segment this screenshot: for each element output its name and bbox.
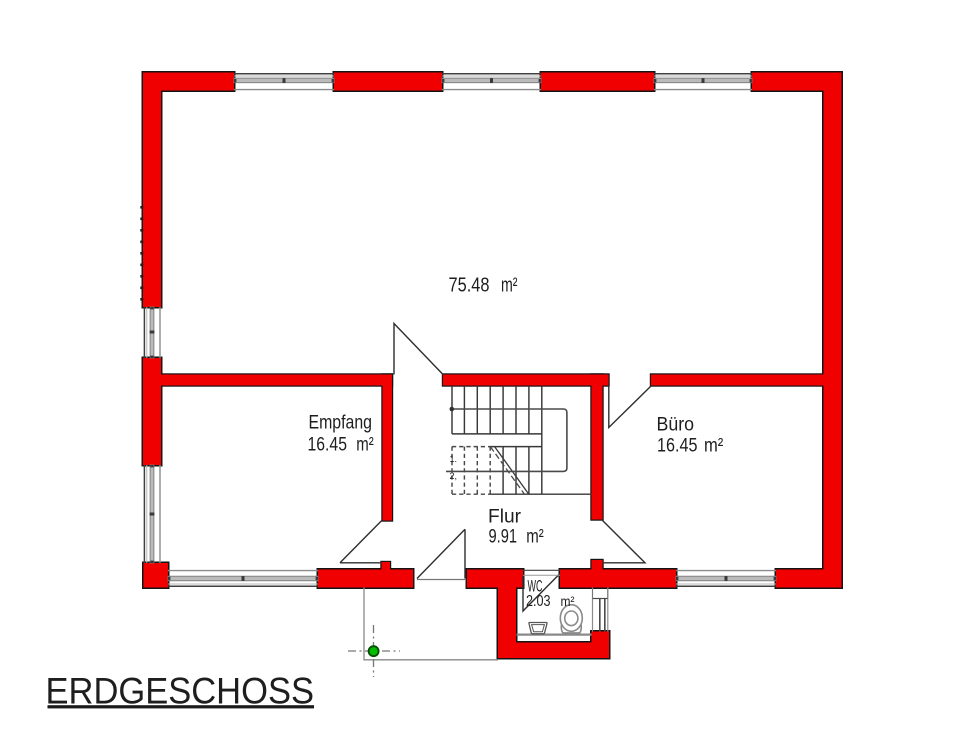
svg-text:1.: 1. — [450, 454, 458, 464]
svg-text:Büro: Büro — [657, 414, 695, 436]
svg-text:16.45: 16.45 — [308, 434, 348, 456]
svg-text:Flur: Flur — [488, 506, 521, 528]
svg-text:m²: m² — [704, 435, 724, 457]
svg-text:16.45: 16.45 — [657, 435, 698, 457]
svg-text:m²: m² — [561, 593, 575, 609]
svg-text:m²: m² — [356, 434, 374, 456]
svg-text:2.03: 2.03 — [526, 593, 551, 610]
svg-text:2,: 2, — [450, 471, 458, 481]
svg-text:75.48: 75.48 — [449, 275, 490, 297]
svg-text:Empfang: Empfang — [309, 412, 373, 434]
svg-text:9.91: 9.91 — [489, 526, 518, 548]
svg-text:m²: m² — [501, 275, 518, 297]
svg-text:m²: m² — [526, 526, 544, 548]
